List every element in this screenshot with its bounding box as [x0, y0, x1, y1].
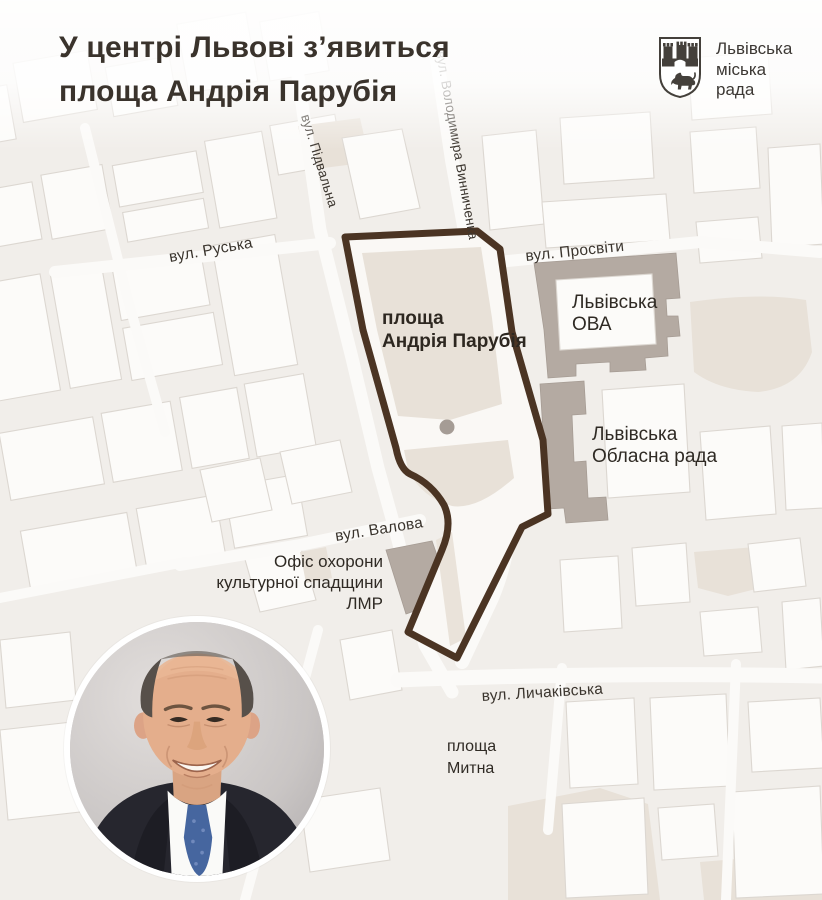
page-title-line2: площа Андрія Парубія: [59, 70, 450, 114]
coat-of-arms-icon: [657, 36, 703, 100]
logo-text-line2: міська: [716, 60, 792, 81]
heritage-label-line3: ЛМР: [346, 594, 383, 613]
page-title-line1: У центрі Львові з’явиться: [59, 26, 450, 70]
square-label-line1: площа: [382, 308, 444, 329]
ova-label-line2: ОВА: [572, 314, 612, 335]
lviv-city-council-logo: Львівська міська рада: [657, 36, 792, 101]
mytna-label-line2: Митна: [447, 760, 494, 777]
square-label-line2: Андрія Парубія: [382, 331, 527, 352]
square-marker-dot: [440, 420, 455, 435]
oblrada-label-line2: Обласна рада: [592, 446, 718, 467]
heritage-label-line1: Офіс охорони: [274, 552, 383, 571]
parubiy-portrait: [64, 616, 330, 882]
logo-text-line1: Львівська: [716, 39, 792, 60]
logo-text-line3: рада: [716, 80, 792, 101]
ova-label-line1: Львівська: [572, 292, 658, 313]
heritage-label-line2: культурної спадщини: [216, 573, 383, 592]
infographic: вул. Руська вул. Підвальна вул. Володими…: [0, 0, 822, 900]
page-title: У центрі Львові з’явиться площа Андрія П…: [59, 26, 450, 114]
oblrada-label-line1: Львівська: [592, 424, 678, 445]
mytna-label-line1: площа: [447, 738, 496, 755]
logo-text: Львівська міська рада: [716, 36, 792, 101]
